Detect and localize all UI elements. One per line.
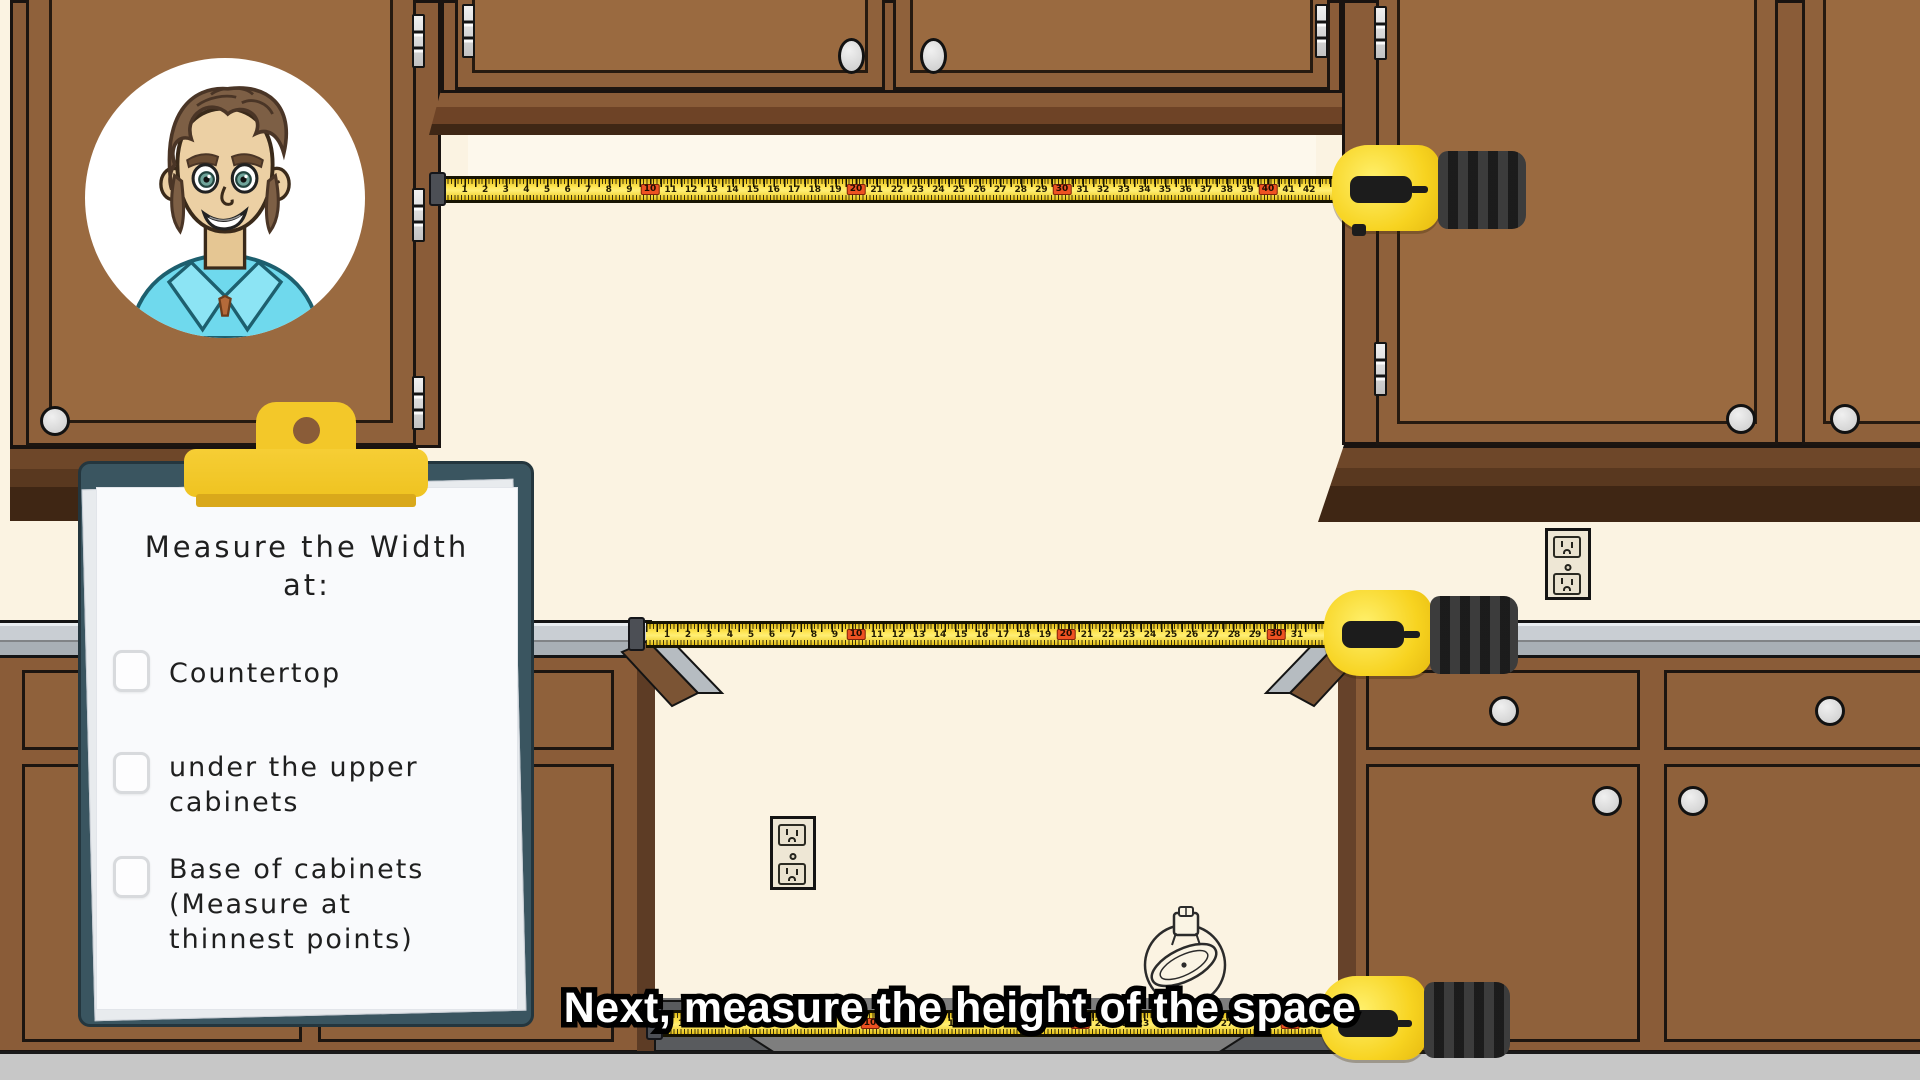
checklist-item-text: cabinets — [169, 787, 299, 818]
tape-number: 18 — [809, 186, 822, 195]
tape-number: 15 — [955, 631, 968, 640]
tape-number: 12 — [685, 186, 698, 195]
tape-number: 22 — [891, 186, 904, 195]
checklist-item-base-of-cabinets: Base of cabinets (Measure at thinnest po… — [169, 852, 509, 957]
tape-number: 27 — [994, 186, 1007, 195]
tape-number: 6 — [769, 631, 775, 640]
tape-number: 30 — [1267, 629, 1286, 640]
tape-number: 37 — [1200, 186, 1213, 195]
tape-number: 12 — [892, 631, 905, 640]
clipboard-checklist-paper: Measure the Width at: Countertop under t… — [96, 487, 518, 1010]
checklist-title-line2: at: — [97, 568, 517, 602]
tape-number: 3 — [503, 186, 509, 195]
tape-number: 18 — [1018, 631, 1031, 640]
tape-number: 39 — [1241, 186, 1254, 195]
tape-number: 8 — [606, 186, 612, 195]
tape-number: 41 — [1282, 186, 1295, 195]
tape-number: 13 — [913, 631, 926, 640]
checklist-item-text: thinnest points) — [169, 924, 414, 955]
middle-tape-lock-stub-icon — [1402, 631, 1420, 638]
checklist-title-line1: Measure the Width — [97, 530, 517, 564]
subtitle-caption-text: Next, measure the height of the space — [0, 984, 1920, 1033]
tape-number: 7 — [585, 186, 591, 195]
tape-number: 35 — [1159, 186, 1172, 195]
tape-number: 38 — [1221, 186, 1234, 195]
tape-number: 10 — [847, 629, 866, 640]
top-tape-belt-clip-icon — [1352, 224, 1366, 236]
tape-number: 9 — [626, 186, 632, 195]
tape-number: 25 — [953, 186, 966, 195]
tape-number: 23 — [1123, 631, 1136, 640]
tape-number: 24 — [932, 186, 945, 195]
checklist-item-under-upper-cabinets: under the upper cabinets — [169, 750, 509, 820]
tape-number: 17 — [997, 631, 1010, 640]
tape-number: 28 — [1015, 186, 1028, 195]
tape-number: 5 — [544, 186, 550, 195]
clipboard-clip — [184, 449, 428, 497]
tape-number: 26 — [1186, 631, 1199, 640]
top-tape-measure-blade: 1234567891011121314151617181920212223242… — [444, 176, 1334, 203]
tape-number: 21 — [870, 186, 883, 195]
tape-number: 16 — [976, 631, 989, 640]
checklist-item-countertop: Countertop — [169, 656, 509, 691]
checkbox-under-upper-cabinets — [113, 752, 150, 794]
middle-tape-lock-slider-icon — [1342, 621, 1404, 648]
tape-number: 21 — [1081, 631, 1094, 640]
tape-number: 15 — [747, 186, 760, 195]
tape-number: 11 — [871, 631, 884, 640]
tape-number: 31 — [1076, 186, 1089, 195]
checklist-item-text: Base of cabinets — [169, 854, 424, 885]
tape-number: 3 — [706, 631, 712, 640]
top-tape-hook-icon — [429, 172, 446, 206]
checkbox-countertop — [113, 650, 150, 692]
tape-number: 25 — [1165, 631, 1178, 640]
tape-number: 10 — [641, 184, 660, 195]
tape-number: 22 — [1102, 631, 1115, 640]
checklist-item-text: under the upper — [169, 752, 419, 783]
tape-number: 8 — [811, 631, 817, 640]
tape-number: 14 — [934, 631, 947, 640]
tape-number: 40 — [1259, 184, 1278, 195]
checklist-item-text: Countertop — [169, 658, 341, 689]
tape-number: 20 — [847, 184, 866, 195]
top-tape-measure-body-back — [1438, 151, 1526, 229]
presenter-avatar — [85, 58, 365, 338]
tape-number: 4 — [523, 186, 529, 195]
checklist-item-text: (Measure at — [169, 889, 352, 920]
tape-number: 42 — [1303, 186, 1316, 195]
tape-number: 26 — [973, 186, 986, 195]
tape-number: 2 — [482, 186, 488, 195]
tape-number: 33 — [1118, 186, 1131, 195]
tape-number: 34 — [1138, 186, 1151, 195]
top-tape-lock-stub-icon — [1410, 186, 1428, 193]
tape-number: 29 — [1035, 186, 1048, 195]
tape-number: 19 — [1039, 631, 1052, 640]
tape-number: 11 — [664, 186, 677, 195]
subtitle-caption: Next, measure the height of the space Ne… — [0, 984, 1920, 1046]
tape-number: 24 — [1144, 631, 1157, 640]
tape-number: 29 — [1249, 631, 1262, 640]
tape-number: 5 — [748, 631, 754, 640]
floor — [0, 1051, 1920, 1080]
tape-number: 13 — [706, 186, 719, 195]
tape-number: 7 — [790, 631, 796, 640]
tape-number: 28 — [1228, 631, 1241, 640]
kitchen-measuring-tutorial-frame: 1234567891011121314151617181920212223242… — [0, 0, 1920, 1080]
tape-number: 2 — [685, 631, 691, 640]
top-tape-lock-slider-icon — [1350, 176, 1412, 203]
tape-number: 1 — [664, 631, 670, 640]
presenter-avatar-illustration — [85, 58, 365, 338]
tape-number: 36 — [1179, 186, 1192, 195]
checkbox-base-of-cabinets — [113, 856, 150, 898]
tape-number: 14 — [726, 186, 739, 195]
clipboard-clip-hole — [293, 417, 320, 444]
middle-tape-measure-body-back — [1430, 596, 1518, 674]
tape-number: 31 — [1291, 631, 1304, 640]
tape-number: 27 — [1207, 631, 1220, 640]
tape-number: 6 — [564, 186, 570, 195]
tape-number: 1 — [461, 186, 467, 195]
tape-number: 30 — [1053, 184, 1072, 195]
middle-tape-hook-icon — [628, 617, 645, 651]
tape-number: 17 — [788, 186, 801, 195]
tape-number: 19 — [829, 186, 842, 195]
tape-number: 9 — [832, 631, 838, 640]
tape-number: 20 — [1057, 629, 1076, 640]
tape-number: 4 — [727, 631, 733, 640]
tape-number: 32 — [1097, 186, 1110, 195]
tape-number: 16 — [767, 186, 780, 195]
middle-tape-measure-blade: 1234567891011121314151617181920212223242… — [646, 621, 1326, 648]
clipboard-clip-shadow — [196, 494, 416, 507]
tape-number: 23 — [912, 186, 925, 195]
